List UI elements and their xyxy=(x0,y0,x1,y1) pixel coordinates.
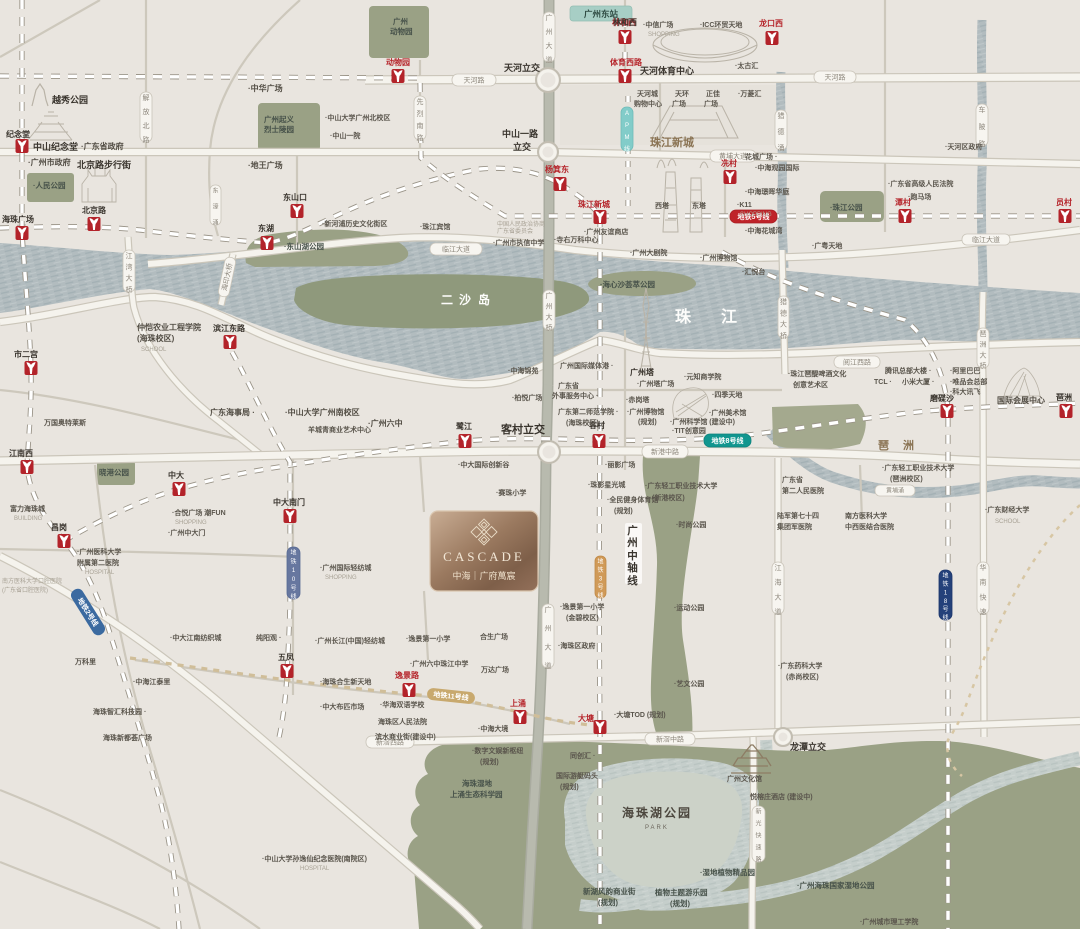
svg-text:五凤: 五凤 xyxy=(278,653,294,662)
svg-text:(规划): (规划) xyxy=(598,897,618,907)
svg-text:龙口西: 龙口西 xyxy=(758,18,783,28)
svg-text:·数字文娱新枢纽: ·数字文娱新枢纽 xyxy=(472,746,523,755)
svg-text:国际会展中心: 国际会展中心 xyxy=(997,395,1045,405)
svg-text:·中华广场: ·中华广场 xyxy=(248,83,283,93)
svg-text:立交: 立交 xyxy=(513,141,531,152)
svg-text:铁: 铁 xyxy=(290,557,296,565)
svg-text:SHOPPING: SHOPPING xyxy=(740,212,772,218)
svg-text:大: 大 xyxy=(545,642,552,651)
svg-text:·唯品会总部: ·唯品会总部 xyxy=(950,377,987,386)
svg-text:珠江新城: 珠江新城 xyxy=(650,135,694,149)
svg-text:广: 广 xyxy=(627,524,638,537)
svg-text:广场: 广场 xyxy=(704,99,718,108)
svg-text:广东省: 广东省 xyxy=(782,475,803,484)
svg-text:·跑马场: ·跑马场 xyxy=(908,192,931,201)
svg-text:陂: 陂 xyxy=(979,122,986,131)
svg-text:·阿里巴巴: ·阿里巴巴 xyxy=(950,366,980,375)
svg-text:岛: 岛 xyxy=(478,292,490,307)
svg-text:·华海双语学校: ·华海双语学校 xyxy=(380,700,425,709)
svg-text:涌: 涌 xyxy=(778,143,785,152)
svg-text:海珠湖公园: 海珠湖公园 xyxy=(622,805,692,820)
svg-text:线: 线 xyxy=(942,614,948,622)
svg-text:洲: 洲 xyxy=(903,439,914,452)
svg-text:林和西: 林和西 xyxy=(613,17,637,27)
svg-text:·广州医科大学: ·广州医科大学 xyxy=(77,547,121,556)
svg-text:·广州城市理工学院: ·广州城市理工学院 xyxy=(860,917,918,926)
svg-text:大: 大 xyxy=(546,312,553,321)
svg-text:正佳: 正佳 xyxy=(706,89,720,98)
svg-text:号: 号 xyxy=(290,585,296,592)
svg-text:万达广场: 万达广场 xyxy=(480,665,509,674)
svg-text:路: 路 xyxy=(143,135,150,144)
svg-text:路: 路 xyxy=(755,856,761,864)
svg-text:·中山一院: ·中山一院 xyxy=(330,131,360,140)
svg-text:广: 广 xyxy=(546,291,553,300)
svg-text:天河立交: 天河立交 xyxy=(504,62,540,73)
svg-text:号: 号 xyxy=(942,606,948,613)
svg-text:·太古汇: ·太古汇 xyxy=(735,61,758,70)
svg-text:·中信广场: ·中信广场 xyxy=(643,20,673,29)
svg-text:·中海江泰里: ·中海江泰里 xyxy=(133,677,170,686)
svg-text:快: 快 xyxy=(980,592,987,601)
svg-text:昌岗: 昌岗 xyxy=(51,522,67,532)
svg-text:纪念堂: 纪念堂 xyxy=(6,129,30,139)
svg-text:新湖风韵商业街: 新湖风韵商业街 xyxy=(583,886,636,896)
svg-text:州: 州 xyxy=(546,28,553,36)
svg-text:购物中心: 购物中心 xyxy=(634,99,662,108)
svg-text:·新河浦历史文化街区: ·新河浦历史文化街区 xyxy=(322,219,387,228)
svg-text:·中山大学广州北校区: ·中山大学广州北校区 xyxy=(325,113,390,122)
svg-text:附属第二医院: 附属第二医院 xyxy=(77,558,119,567)
svg-text:大: 大 xyxy=(980,350,987,359)
svg-text:中山一路: 中山一路 xyxy=(502,128,539,139)
svg-text:·丽影广场: ·丽影广场 xyxy=(605,460,635,469)
svg-text:·广东省高级人民法院: ·广东省高级人民法院 xyxy=(888,179,953,188)
svg-text:中海｜广府萬宸: 中海｜广府萬宸 xyxy=(452,570,515,581)
svg-text:速: 速 xyxy=(755,845,761,852)
svg-text:·中大江南纺织城: ·中大江南纺织城 xyxy=(170,633,221,642)
svg-text:德: 德 xyxy=(780,308,787,317)
svg-text:陆军第七十四: 陆军第七十四 xyxy=(777,511,819,520)
svg-text:桥: 桥 xyxy=(980,361,987,370)
svg-text:东山口: 东山口 xyxy=(283,192,307,202)
svg-text:·广州海珠国家湿地公园: ·广州海珠国家湿地公园 xyxy=(797,880,875,890)
svg-text:猎: 猎 xyxy=(780,297,787,306)
svg-text:纯阳观 ·: 纯阳观 · xyxy=(256,633,281,642)
svg-text:南: 南 xyxy=(417,121,424,130)
svg-text:江: 江 xyxy=(126,252,133,260)
svg-text:铁: 铁 xyxy=(942,580,948,588)
svg-text:·科大讯飞: ·科大讯飞 xyxy=(950,387,980,396)
svg-text:中西医结合医院: 中西医结合医院 xyxy=(845,522,894,531)
svg-text:桥: 桥 xyxy=(126,285,133,294)
svg-text:·广州科学馆 (建设中): ·广州科学馆 (建设中) xyxy=(670,417,735,426)
svg-text:(规划): (规划) xyxy=(560,782,579,791)
svg-text:轴: 轴 xyxy=(627,561,638,574)
svg-text:小米大厦 ·: 小米大厦 · xyxy=(901,377,934,386)
svg-text:华: 华 xyxy=(980,563,987,572)
svg-text:·万菱汇: ·万菱汇 xyxy=(738,89,761,98)
svg-text:·广粤天地: ·广粤天地 xyxy=(812,241,842,250)
svg-text:线: 线 xyxy=(624,145,630,153)
svg-text:万科里: 万科里 xyxy=(74,657,96,666)
svg-text:东湖: 东湖 xyxy=(258,223,274,233)
svg-text:·中大国际创新谷: ·中大国际创新谷 xyxy=(458,460,510,469)
svg-text:阅江西路: 阅江西路 xyxy=(843,358,871,367)
svg-text:·天河区政府: ·天河区政府 xyxy=(945,142,982,151)
svg-text:大塘: 大塘 xyxy=(578,713,594,723)
svg-text:铁: 铁 xyxy=(597,566,603,574)
svg-text:道: 道 xyxy=(545,661,552,670)
svg-text:晓港公园: 晓港公园 xyxy=(99,467,129,477)
svg-text:SHOPPING: SHOPPING xyxy=(175,520,207,526)
svg-text:大: 大 xyxy=(546,41,553,50)
svg-text:·广州中大门: ·广州中大门 xyxy=(168,528,205,537)
svg-text:临江大道: 临江大道 xyxy=(972,235,1000,244)
svg-text:·逸景第一小学: ·逸景第一小学 xyxy=(406,634,450,643)
svg-text:上涌生态科学园: 上涌生态科学园 xyxy=(450,789,503,799)
svg-text:·人民公园: ·人民公园 xyxy=(33,181,66,190)
svg-text:南方医科大学: 南方医科大学 xyxy=(845,511,887,520)
svg-text:地铁8号线: 地铁8号线 xyxy=(712,436,744,445)
svg-text:·K11: ·K11 xyxy=(737,202,752,209)
svg-text:烈: 烈 xyxy=(417,109,424,118)
svg-text:中国人民政治协商: 中国人民政治协商 xyxy=(497,220,545,228)
svg-text:滨水商业街(建设中): 滨水商业街(建设中) xyxy=(375,732,436,741)
svg-text:广: 广 xyxy=(546,13,553,22)
svg-text:·广州市政府: ·广州市政府 xyxy=(28,157,71,167)
svg-text:琶洲: 琶洲 xyxy=(1056,393,1072,402)
svg-text:广东海事局 ·: 广东海事局 · xyxy=(210,407,255,417)
svg-text:(规划): (规划) xyxy=(670,898,690,908)
svg-text:琶: 琶 xyxy=(878,439,889,452)
svg-text:员村: 员村 xyxy=(1056,197,1072,207)
svg-text:新港中路: 新港中路 xyxy=(651,447,679,456)
svg-text:M: M xyxy=(625,135,630,141)
svg-text:中大: 中大 xyxy=(168,470,184,480)
svg-text:沙: 沙 xyxy=(459,293,471,307)
svg-text:海珠智汇科技园 ·: 海珠智汇科技园 · xyxy=(93,707,146,716)
svg-text:SHOPPING: SHOPPING xyxy=(648,32,680,38)
svg-text:海珠新都荟广场: 海珠新都荟广场 xyxy=(103,733,152,742)
svg-text:路: 路 xyxy=(417,133,424,142)
svg-text:动物园: 动物园 xyxy=(390,26,413,36)
svg-text:·广州塔广场: ·广州塔广场 xyxy=(637,379,674,388)
svg-text:·中山大学广州南校区: ·中山大学广州南校区 xyxy=(285,407,360,417)
svg-text:濠: 濠 xyxy=(212,203,218,211)
svg-text:江: 江 xyxy=(721,308,737,326)
svg-text:(琶洲校区): (琶洲校区) xyxy=(890,474,923,483)
svg-text:放: 放 xyxy=(143,107,150,116)
svg-text:·ICC环贸天地: ·ICC环贸天地 xyxy=(700,20,742,29)
svg-text:广州国际媒体港 ·: 广州国际媒体港 · xyxy=(560,361,613,370)
svg-text:合生广场: 合生广场 xyxy=(479,632,508,641)
svg-text:国际游艇码头: 国际游艇码头 xyxy=(556,771,598,780)
svg-text:线: 线 xyxy=(597,592,603,600)
svg-text:同创汇 ·: 同创汇 · xyxy=(570,751,595,760)
svg-text:南: 南 xyxy=(980,578,987,587)
svg-text:·海珠区政府: ·海珠区政府 xyxy=(558,641,595,650)
svg-text:天河路: 天河路 xyxy=(825,73,846,82)
svg-text:CASCADE: CASCADE xyxy=(443,549,525,564)
svg-text:中大南门: 中大南门 xyxy=(273,497,305,507)
svg-text:·广州国际轻纺城: ·广州国际轻纺城 xyxy=(320,563,371,572)
svg-text:植物主题游乐园: 植物主题游乐园 xyxy=(654,887,708,897)
svg-text:西塔: 西塔 xyxy=(655,201,670,210)
svg-text:道: 道 xyxy=(546,55,553,64)
svg-text:广州: 广州 xyxy=(393,16,408,26)
svg-text:羊城青商业艺术中心: 羊城青商业艺术中心 xyxy=(308,425,371,434)
svg-text:龙潭立交: 龙潭立交 xyxy=(789,741,826,752)
svg-text:·全民健身体育馆: ·全民健身体育馆 xyxy=(607,495,658,504)
svg-text:天河城: 天河城 xyxy=(637,89,658,98)
svg-text:(海珠校区): (海珠校区) xyxy=(566,418,599,427)
svg-text:桥: 桥 xyxy=(780,331,787,340)
svg-text:(海珠校区): (海珠校区) xyxy=(137,333,175,343)
svg-text:州: 州 xyxy=(545,625,552,633)
svg-text:A: A xyxy=(625,111,629,117)
svg-text:客村立交: 客村立交 xyxy=(500,422,545,436)
svg-text:·时尚公园: ·时尚公园 xyxy=(676,520,706,529)
svg-text:广州塔: 广州塔 xyxy=(630,367,655,377)
svg-text:创意艺术区: 创意艺术区 xyxy=(792,380,828,389)
svg-text:天河体育中心: 天河体育中心 xyxy=(640,65,694,76)
svg-text:逸景路: 逸景路 xyxy=(395,670,420,680)
svg-text:·合悦广场 潮FUN: ·合悦广场 潮FUN xyxy=(172,508,226,517)
svg-text:·广东药科大学: ·广东药科大学 xyxy=(778,661,822,670)
svg-text:广州文化馆: 广州文化馆 xyxy=(727,774,762,783)
svg-text:市二宫: 市二宫 xyxy=(14,349,38,359)
svg-text:SCHOOL: SCHOOL xyxy=(141,347,167,353)
svg-text:车: 车 xyxy=(979,105,986,114)
svg-text:(规划): (规划) xyxy=(638,417,657,426)
svg-text:外事服务中心 ·: 外事服务中心 · xyxy=(552,391,598,400)
svg-text:·中海花城湾: ·中海花城湾 xyxy=(745,226,782,235)
svg-text:地: 地 xyxy=(290,549,296,557)
svg-text:北京路: 北京路 xyxy=(82,205,107,215)
svg-text:·大塘TOD (规划): ·大塘TOD (规划) xyxy=(614,710,666,719)
svg-text:仲恺农业工程学院: 仲恺农业工程学院 xyxy=(137,322,201,332)
svg-text:·广州美术馆: ·广州美术馆 xyxy=(709,408,746,417)
svg-text:·珠影星光城: ·珠影星光城 xyxy=(588,480,625,489)
svg-text:越秀公园: 越秀公园 xyxy=(51,94,88,105)
svg-text:广场: 广场 xyxy=(672,99,686,108)
svg-text:上涌: 上涌 xyxy=(510,698,526,708)
svg-text:广州起义: 广州起义 xyxy=(264,114,294,124)
svg-text:珠江新城: 珠江新城 xyxy=(578,199,610,209)
svg-text:·逸景第一小学: ·逸景第一小学 xyxy=(560,602,604,611)
svg-text:地: 地 xyxy=(942,572,948,580)
svg-text:·地王广场: ·地王广场 xyxy=(248,160,283,170)
svg-text:北京路步行街: 北京路步行街 xyxy=(77,159,131,170)
svg-text:·广州市执信中学: ·广州市执信中学 xyxy=(493,238,544,247)
svg-text:·广州友谊商店: ·广州友谊商店 xyxy=(584,227,628,236)
svg-text:·中大布匹市场: ·中大布匹市场 xyxy=(320,702,364,711)
svg-text:大: 大 xyxy=(775,592,782,601)
svg-text:二: 二 xyxy=(441,293,453,307)
svg-text:·中海锦苑: ·中海锦苑 xyxy=(508,366,538,375)
svg-text:·海心沙荟萃公园: ·海心沙荟萃公园 xyxy=(600,279,655,289)
svg-text:·东山湖公园: ·东山湖公园 xyxy=(284,241,324,251)
svg-text:德: 德 xyxy=(778,127,785,136)
svg-text:广东第二师范学院 ·: 广东第二师范学院 · xyxy=(558,407,618,416)
svg-text:第二人民医院: 第二人民医院 xyxy=(782,486,824,495)
svg-text:·中海观园国际: ·中海观园国际 xyxy=(755,163,799,172)
svg-text:·四季天地: ·四季天地 xyxy=(712,390,742,399)
svg-text:湾: 湾 xyxy=(126,262,133,271)
svg-text:广东省委员会: 广东省委员会 xyxy=(497,227,533,235)
svg-text:鹭江: 鹭江 xyxy=(456,421,472,431)
svg-text:大: 大 xyxy=(126,274,133,283)
svg-text:SHOPPING: SHOPPING xyxy=(325,575,357,581)
svg-text:·湿地植物精品园: ·湿地植物精品园 xyxy=(700,867,755,877)
svg-text:BUILDING: BUILDING xyxy=(14,516,43,522)
svg-text:PARK: PARK xyxy=(645,825,669,831)
svg-text:·广东轻工职业技术大学: ·广东轻工职业技术大学 xyxy=(645,481,717,490)
svg-text:·广州长江(中国)轻纺城: ·广州长江(中国)轻纺城 xyxy=(315,636,385,645)
svg-text:·广州六中珠江中学: ·广州六中珠江中学 xyxy=(410,659,468,668)
svg-text:·珠江宾馆: ·珠江宾馆 xyxy=(420,222,450,231)
svg-text:·寺右万科中心: ·寺右万科中心 xyxy=(554,235,598,244)
svg-text:东塔: 东塔 xyxy=(692,201,707,210)
svg-text:动物园: 动物园 xyxy=(386,57,410,67)
svg-text:先: 先 xyxy=(417,97,424,106)
svg-text:琶: 琶 xyxy=(980,330,987,338)
svg-text:州: 州 xyxy=(546,303,553,311)
svg-text:·广东轻工职业技术大学: ·广东轻工职业技术大学 xyxy=(882,463,954,472)
svg-text:北: 北 xyxy=(143,122,150,130)
svg-text:桥: 桥 xyxy=(546,323,553,332)
svg-text:光: 光 xyxy=(755,820,761,828)
svg-text:解: 解 xyxy=(143,93,150,102)
svg-text:涌: 涌 xyxy=(212,219,218,227)
svg-text:万国奥特莱斯: 万国奥特莱斯 xyxy=(43,418,86,427)
svg-text:·元知商学院: ·元知商学院 xyxy=(684,372,721,381)
svg-text:天河路: 天河路 xyxy=(464,76,485,85)
svg-text:集团军医院: 集团军医院 xyxy=(776,522,812,531)
svg-text:·赛珠小学: ·赛珠小学 xyxy=(496,488,526,497)
svg-text:花城广场 ·: 花城广场 · xyxy=(745,152,777,161)
svg-text:天环: 天环 xyxy=(675,90,689,98)
svg-text:海珠湿地: 海珠湿地 xyxy=(462,778,492,788)
svg-text:(金碧校区): (金碧校区) xyxy=(566,613,599,622)
svg-text:江南西: 江南西 xyxy=(9,448,33,458)
svg-text:·广东省政府: ·广东省政府 xyxy=(81,141,124,151)
svg-text:·中山大学孙逸仙纪念医院(南院区): ·中山大学孙逸仙纪念医院(南院区) xyxy=(262,854,367,863)
svg-text:广东省: 广东省 xyxy=(558,381,579,390)
svg-text:烈士陵园: 烈士陵园 xyxy=(264,124,294,134)
svg-text:富力海珠城: 富力海珠城 xyxy=(10,504,45,513)
svg-text:线: 线 xyxy=(290,593,296,601)
svg-text:线: 线 xyxy=(627,574,638,587)
svg-text:·广州六中: ·广州六中 xyxy=(368,418,403,428)
svg-text:速: 速 xyxy=(980,608,987,616)
svg-text:冼村: 冼村 xyxy=(721,158,737,168)
svg-text:号: 号 xyxy=(597,584,603,591)
svg-text:南方医科大学口腔医院: 南方医科大学口腔医院 xyxy=(2,577,62,585)
svg-text:·中海大境: ·中海大境 xyxy=(478,724,508,733)
svg-text:洲: 洲 xyxy=(980,341,987,349)
svg-text:P: P xyxy=(625,123,629,129)
svg-text:SCHOOL: SCHOOL xyxy=(995,519,1021,525)
svg-text:(规划): (规划) xyxy=(614,506,633,515)
svg-text:中山纪念堂: 中山纪念堂 xyxy=(33,141,78,152)
svg-text:·珠江公园: ·珠江公园 xyxy=(830,202,863,212)
svg-text:临江大道: 临江大道 xyxy=(442,245,470,254)
svg-text:·珠江琶醍啤酒文化: ·珠江琶醍啤酒文化 xyxy=(788,369,846,378)
svg-text:·广东财经大学: ·广东财经大学 xyxy=(985,505,1029,514)
svg-text:·艺文公园: ·艺文公园 xyxy=(674,679,704,688)
svg-text:黄埔涌: 黄埔涌 xyxy=(886,487,904,495)
svg-text:·中海璟晖华庭: ·中海璟晖华庭 xyxy=(745,187,790,196)
svg-text:·广州大剧院: ·广州大剧院 xyxy=(630,248,667,257)
svg-text:(广东省口腔医院): (广东省口腔医院) xyxy=(2,586,48,594)
svg-text:海珠广场: 海珠广场 xyxy=(2,214,34,224)
svg-text:·广州博物馆: ·广州博物馆 xyxy=(627,407,664,416)
svg-text:·海珠合生新天地: ·海珠合生新天地 xyxy=(320,677,371,686)
svg-text:体育西路: 体育西路 xyxy=(610,57,643,67)
svg-text:道: 道 xyxy=(775,607,782,616)
svg-text:·赤岗塔: ·赤岗塔 xyxy=(626,395,650,404)
svg-text:HOSPITAL: HOSPITAL xyxy=(300,866,330,872)
svg-text:杨箕东: 杨箕东 xyxy=(545,164,569,174)
svg-text:·柏悦广场: ·柏悦广场 xyxy=(512,393,542,402)
svg-text:广: 广 xyxy=(545,605,552,614)
svg-text:滨江东路: 滨江东路 xyxy=(213,323,246,333)
svg-text:珠: 珠 xyxy=(675,307,692,326)
svg-text:·广州博物馆: ·广州博物馆 xyxy=(700,253,737,262)
svg-text:东: 东 xyxy=(212,187,218,195)
svg-text:大: 大 xyxy=(780,320,787,329)
svg-text:江: 江 xyxy=(775,564,782,572)
svg-text:新滘中路: 新滘中路 xyxy=(656,735,684,744)
svg-text:新: 新 xyxy=(755,808,761,816)
svg-text:TCL ·: TCL · xyxy=(874,379,892,386)
svg-text:腾讯总部大楼 ·: 腾讯总部大楼 · xyxy=(884,366,931,375)
svg-text:·运动公园: ·运动公园 xyxy=(674,603,704,612)
svg-text:猎: 猎 xyxy=(778,111,785,120)
svg-text:海: 海 xyxy=(775,578,782,587)
svg-text:·TIT创意园: ·TIT创意园 xyxy=(672,426,706,435)
svg-text:HOSPITAL: HOSPITAL xyxy=(85,570,115,576)
svg-text:悦榕庄酒店 (建设中): 悦榕庄酒店 (建设中) xyxy=(750,792,813,801)
svg-text:·汇悦台: ·汇悦台 xyxy=(742,267,765,276)
svg-text:中: 中 xyxy=(627,549,638,562)
svg-text:州: 州 xyxy=(626,537,638,549)
svg-text:(规划): (规划) xyxy=(480,757,499,766)
svg-text:(赤尚校区): (赤尚校区) xyxy=(786,672,819,681)
svg-text:快: 快 xyxy=(755,832,761,840)
svg-text:地: 地 xyxy=(597,558,603,566)
svg-text:海珠区人民法院: 海珠区人民法院 xyxy=(378,717,427,726)
